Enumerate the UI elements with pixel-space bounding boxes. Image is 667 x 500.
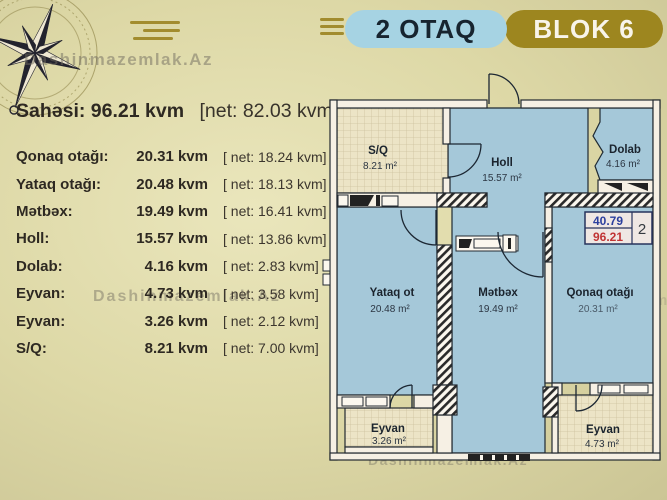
floorplan-page: BLOK 6 2 OTAQ Dashinmazemlak.Az Dashinma… [0, 0, 667, 500]
room-net-area: [ net: 2.12 kvm] [223, 313, 319, 329]
table-row: Dolab:4.16 kvm[ net: 2.83 kvm] [16, 253, 327, 280]
gold-line [130, 21, 180, 24]
room-area: 15.57 m² [482, 173, 522, 184]
room-type-badge: 2 OTAQ [345, 10, 507, 48]
room-area: 19.49 m² [478, 304, 518, 315]
gold-line [133, 37, 173, 40]
kitchen-counter-icon [456, 235, 518, 252]
room-net-area: [ net: 7.00 kvm] [223, 340, 319, 356]
total-area-summary: Sahəsi: 96.21 kvm [net: 82.03 kvm] [16, 100, 338, 123]
room-label: Mətbəx: [16, 203, 128, 220]
room-name: Dolab [609, 144, 641, 156]
room-area: 19.49 kvm [128, 203, 208, 220]
room-area: 4.16 m² [606, 159, 641, 170]
gold-line [320, 25, 344, 28]
bathroom-fixtures-icon [338, 195, 398, 206]
room-area: 3.26 m² [372, 436, 407, 447]
badge-net-area: 40.79 [593, 214, 623, 228]
room-net-area: [ net: 3.58 kvm] [223, 286, 319, 302]
summary-net: [net: 82.03 kvm] [199, 100, 338, 122]
room-net-area: [ net: 18.24 kvm] [223, 149, 327, 165]
block-badge: BLOK 6 [505, 10, 663, 48]
gold-line [143, 29, 180, 32]
room-label: Holl: [16, 230, 128, 247]
kitchen-window-icon [468, 454, 530, 461]
room-name: Yataq ot [370, 287, 415, 299]
room-label: Eyvan: [16, 313, 128, 330]
unit-badge: 40.79 96.21 2 [585, 212, 652, 244]
room-area: 20.48 kvm [128, 176, 208, 193]
room-area: 20.31 kvm [128, 148, 208, 165]
room-net-area: [ net: 13.86 kvm] [223, 231, 327, 247]
room-area: 8.21 m² [363, 161, 398, 172]
room-area: 20.31 m² [578, 304, 618, 315]
gold-line [320, 18, 344, 21]
room-name: Eyvan [371, 423, 405, 435]
room-net-area: [ net: 18.13 kvm] [223, 176, 327, 192]
entrance-door-arc [489, 74, 519, 104]
table-row: Holl:15.57 kvm[ net: 13.86 kvm] [16, 225, 327, 252]
table-row: Qonaq otağı:20.31 kvm[ net: 18.24 kvm] [16, 143, 327, 170]
room-name: Mətbəx [478, 287, 518, 299]
room-net-area: [ net: 16.41 kvm] [223, 203, 327, 219]
room-sq [337, 108, 448, 193]
room-area: 20.48 m² [370, 304, 410, 315]
room-net-area: [ net: 2.83 kvm] [223, 258, 319, 274]
table-row: Eyvan:3.26 kvm[ net: 2.12 kvm] [16, 307, 327, 334]
room-label: Eyvan: [16, 285, 128, 302]
floorplan-drawing: 40.79 96.21 2 S/Q 8.21 m² Holl 15.57 m² … [322, 60, 667, 470]
room-name: Qonaq otağı [566, 287, 633, 299]
summary-label: Sahəsi: [16, 100, 85, 122]
gold-line [320, 32, 344, 35]
room-area: 15.57 kvm [128, 230, 208, 247]
block-label: BLOK 6 [533, 14, 634, 45]
table-row: Eyvan:4.73 kvm[ net: 3.58 kvm] [16, 280, 327, 307]
table-row: Mətbəx:19.49 kvm[ net: 16.41 kvm] [16, 198, 327, 225]
badge-gross-area: 96.21 [593, 230, 623, 244]
room-label: Qonaq otağı: [16, 148, 128, 165]
room-type-label: 2 OTAQ [376, 14, 477, 45]
room-area: 4.16 kvm [128, 258, 208, 275]
room-area: 3.26 kvm [128, 313, 208, 330]
table-row: S/Q:8.21 kvm[ net: 7.00 kvm] [16, 335, 327, 362]
room-yataq [337, 207, 437, 395]
room-area: 4.73 kvm [128, 285, 208, 302]
room-area: 8.21 kvm [128, 340, 208, 357]
room-label: Yataq otağı: [16, 176, 128, 193]
room-name: Eyvan [586, 424, 620, 436]
room-label: S/Q: [16, 340, 128, 357]
room-label: Dolab: [16, 258, 128, 275]
room-name: S/Q [368, 145, 388, 157]
badge-unit-number: 2 [638, 221, 646, 238]
room-name: Holl [491, 157, 513, 169]
room-area: 4.73 m² [585, 439, 620, 450]
summary-value: 96.21 kvm [91, 100, 184, 122]
area-table: Qonaq otağı:20.31 kvm[ net: 18.24 kvm] Y… [16, 143, 327, 362]
table-row: Yataq otağı:20.48 kvm[ net: 18.13 kvm] [16, 170, 327, 197]
